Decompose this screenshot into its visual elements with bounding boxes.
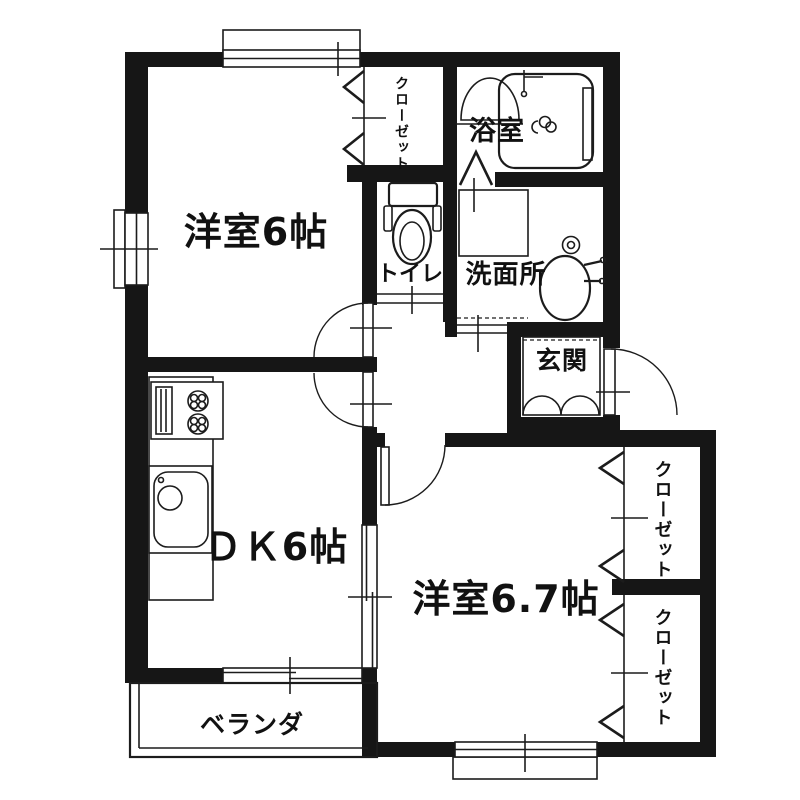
label-closet-top: クローゼット [393, 76, 409, 172]
label-entrance: 玄関 [536, 346, 588, 375]
wall-bedroom-top-b [445, 433, 598, 447]
wall-hall-stub [362, 357, 377, 372]
label-closet-b: クローゼット [652, 608, 673, 728]
door-dk [314, 372, 392, 427]
wall-washroom-bottom-a [445, 322, 457, 337]
sliding-door-dk-veranda [223, 657, 362, 694]
label-veranda: ベランダ [200, 710, 304, 739]
door-closet-west-bifold [344, 67, 386, 165]
wall-toilet-washroom [443, 52, 457, 322]
wall-left-upper [125, 52, 148, 213]
door-bedroom [381, 445, 445, 505]
wall-bottom-right-of-window [597, 742, 716, 757]
washing-machine-space [459, 190, 528, 256]
window-bedroom-bottom [453, 734, 597, 779]
wall-top-right [360, 52, 620, 67]
wall-dk-bedroom-lower [362, 668, 377, 757]
window-top [223, 30, 360, 76]
wall-bedroom-top-a [362, 433, 385, 447]
wall-washroom-genkan [521, 322, 603, 337]
floor-plan-svg: 洋室6帖 クローゼット 浴室 トイレ 洗面所 玄関 ＤＫ6帖 洋室6.7帖 クロ… [0, 0, 800, 800]
wall-right-upper [603, 52, 620, 348]
label-dk: ＤＫ6帖 [204, 525, 348, 569]
window-left [100, 210, 158, 288]
label-west-room: 洋室6帖 [184, 210, 328, 254]
sliding-door-dk-bedroom [348, 525, 392, 668]
wall-westroom-dk [125, 357, 362, 372]
kitchen-sink [149, 466, 212, 553]
toilet-fixture [384, 183, 441, 264]
door-bath-bifold [460, 152, 492, 212]
label-bath: 浴室 [469, 115, 525, 147]
kitchen-stove [151, 382, 223, 439]
label-closet-a: クローゼット [652, 460, 673, 580]
door-entrance [596, 349, 677, 415]
wall-closet-top [598, 430, 716, 447]
wall-genkan-left [507, 322, 521, 433]
door-closet-b-bifold [600, 595, 648, 742]
wall-left-lower [125, 285, 148, 682]
floorplan-canvas: 洋室6帖 クローゼット 浴室 トイレ 洗面所 玄関 ＤＫ6帖 洋室6.7帖 クロ… [0, 0, 800, 800]
door-washroom [457, 315, 507, 352]
label-toilet: トイレ [377, 262, 443, 287]
wall-bath-bottom [495, 172, 603, 187]
label-bedroom: 洋室6.7帖 [412, 577, 599, 621]
door-closet-a-bifold [600, 447, 648, 582]
wall-dk-bottom [125, 668, 223, 683]
wall-right-lower [700, 430, 716, 757]
label-washroom: 洗面所 [465, 260, 546, 290]
wall-hall-vertical [362, 165, 377, 305]
door-toilet [377, 286, 443, 314]
door-west-room [314, 303, 392, 357]
wall-closet-divider [612, 579, 700, 595]
